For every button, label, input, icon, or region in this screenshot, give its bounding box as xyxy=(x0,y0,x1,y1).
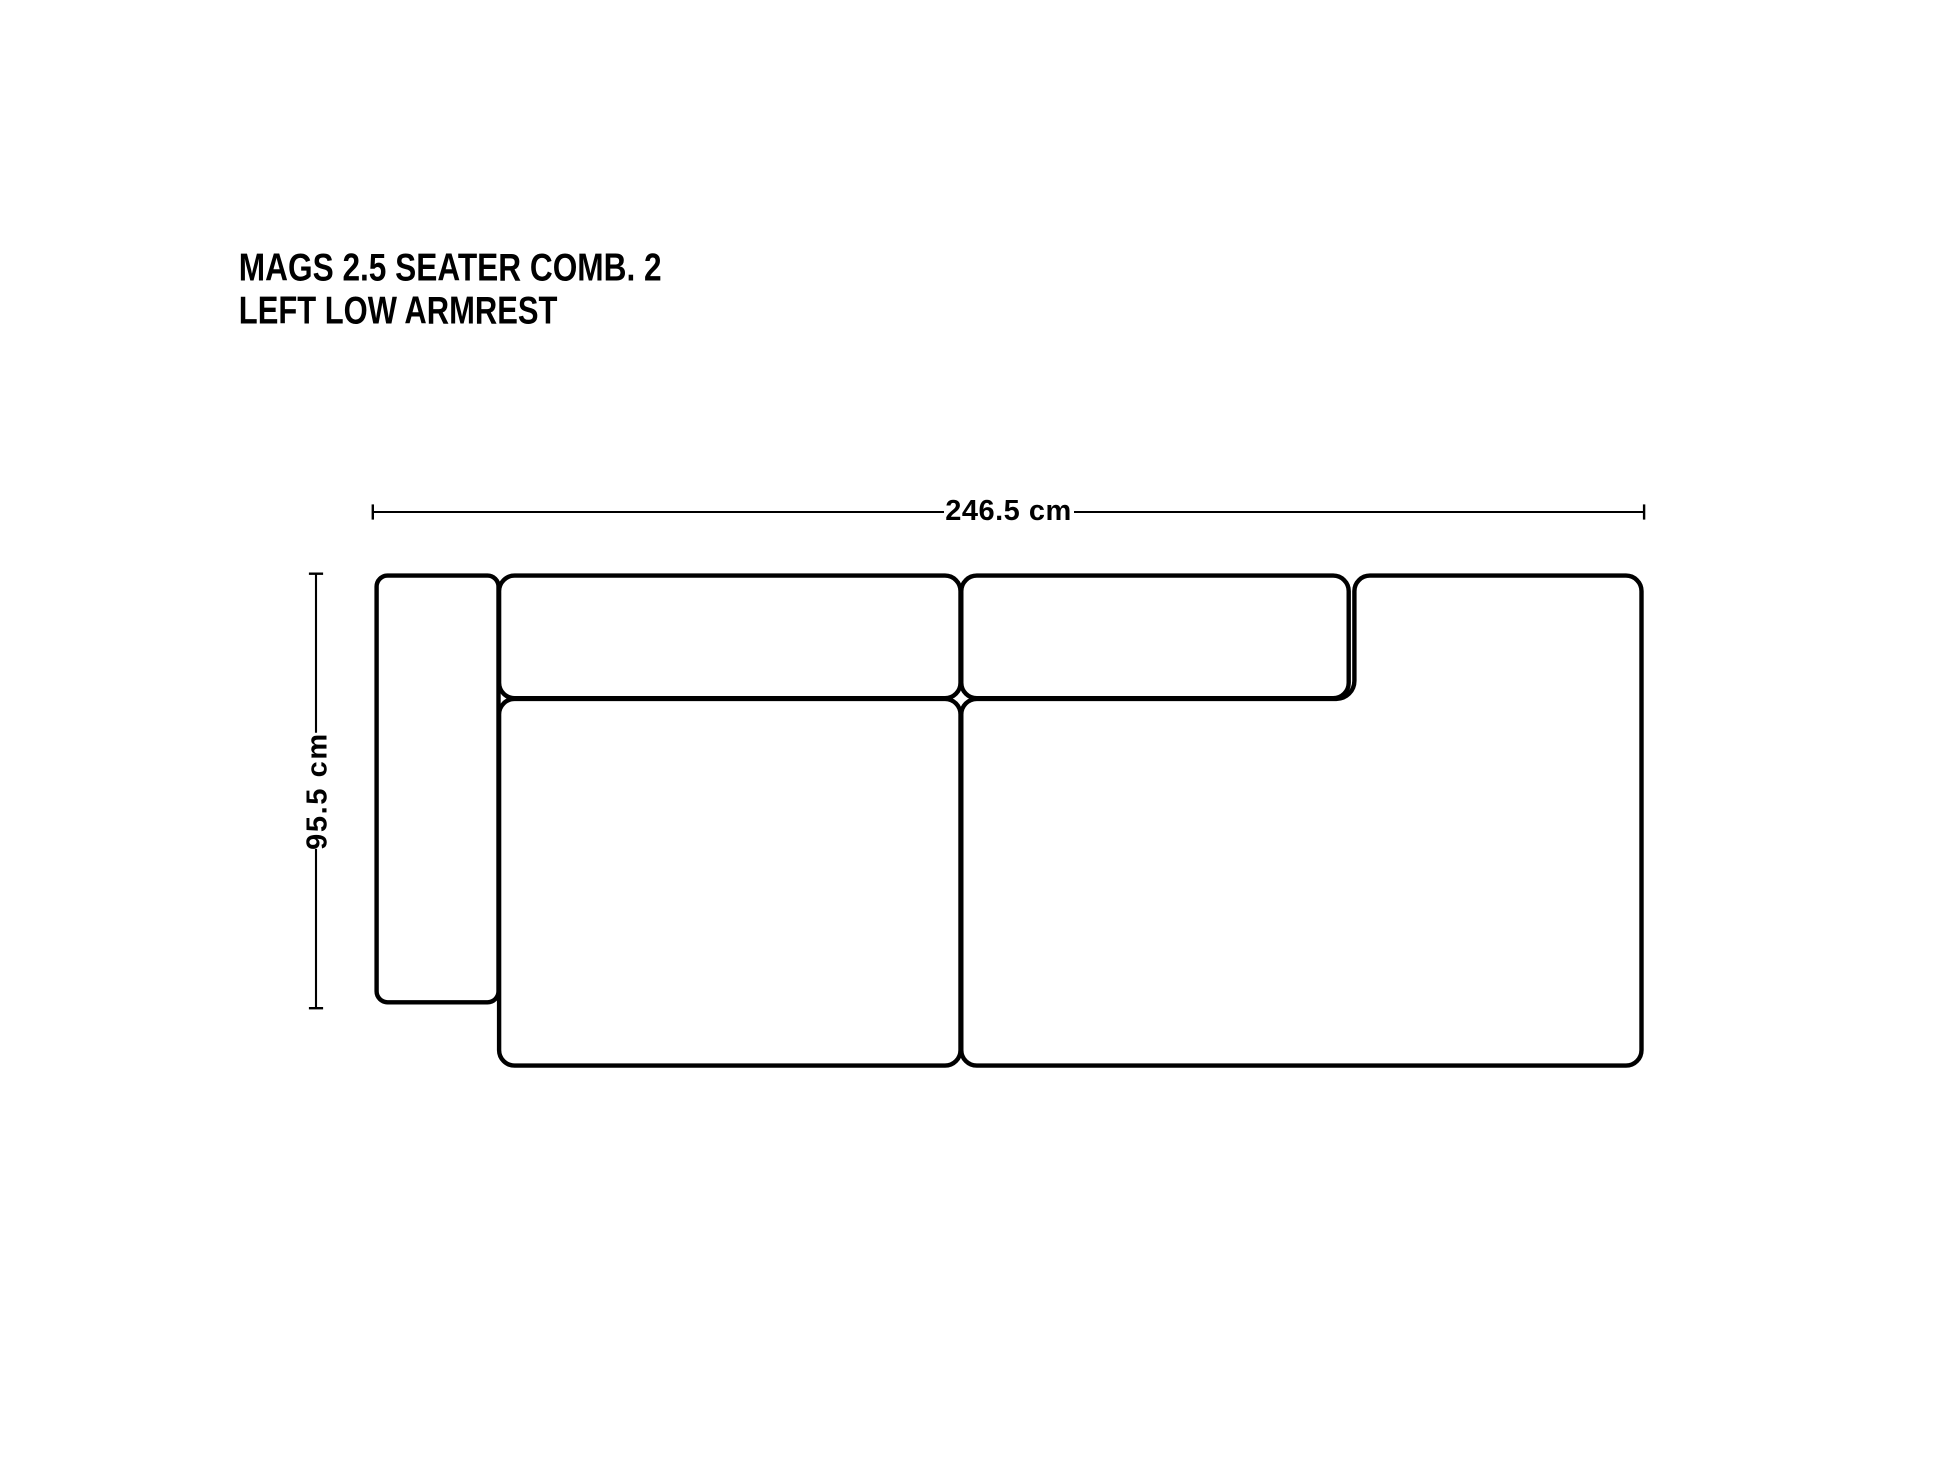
svg-text:246.5 cm: 246.5 cm xyxy=(945,495,1072,527)
svg-text:LEFT LOW ARMREST: LEFT LOW ARMREST xyxy=(239,289,558,332)
svg-text:MAGS 2.5 SEATER COMB. 2: MAGS 2.5 SEATER COMB. 2 xyxy=(239,247,662,290)
svg-text:95.5 cm: 95.5 cm xyxy=(301,732,333,850)
